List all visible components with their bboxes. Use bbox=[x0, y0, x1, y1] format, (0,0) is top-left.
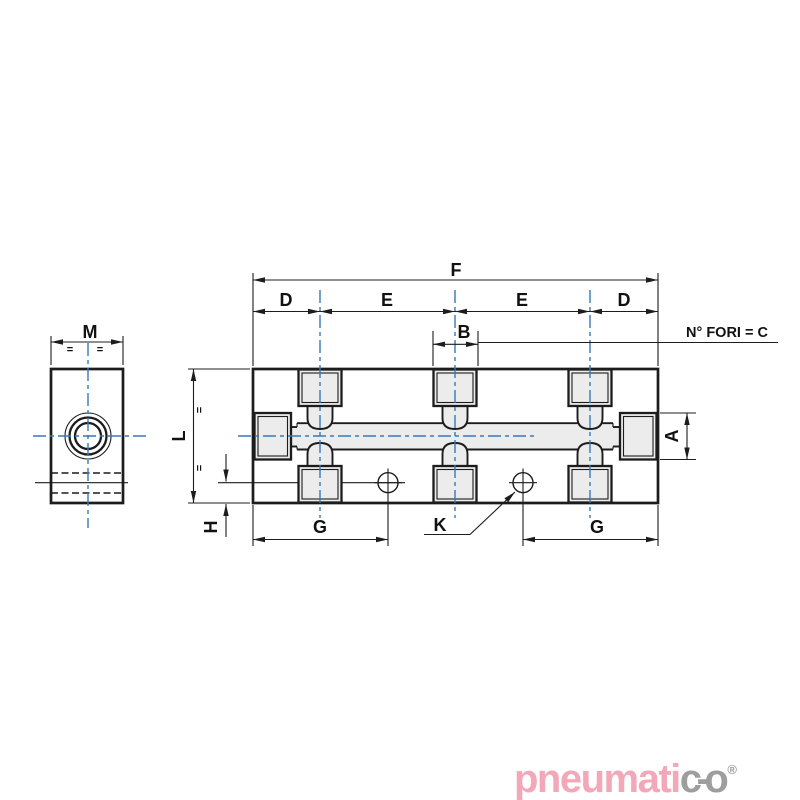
dim-label-f: F bbox=[451, 260, 462, 280]
equality-mark: = bbox=[97, 344, 103, 356]
logo-text-o: o bbox=[704, 757, 727, 800]
port-right bbox=[620, 413, 657, 460]
dim-label-g-right: G bbox=[590, 517, 604, 537]
dim-label-e-left: E bbox=[381, 290, 393, 310]
technical-drawing: M = = bbox=[0, 0, 800, 800]
dim-label-h: H bbox=[201, 521, 221, 534]
dim-label-k: K bbox=[434, 515, 447, 535]
dim-label-m: M bbox=[83, 322, 98, 342]
registered-mark: ® bbox=[727, 762, 737, 777]
end-view: M = = bbox=[33, 322, 150, 528]
dim-m: M = = bbox=[51, 322, 123, 365]
dim-label-l: L bbox=[169, 431, 189, 442]
dim-label-d-left: D bbox=[280, 290, 293, 310]
equality-mark: = bbox=[194, 407, 206, 413]
dim-label-b: B bbox=[458, 322, 471, 342]
logo-text-primary: pneumati bbox=[514, 757, 680, 800]
brand-logo: pneumatic-o® bbox=[514, 757, 737, 800]
equality-mark: = bbox=[194, 465, 206, 471]
dim-label-g-left: G bbox=[313, 517, 327, 537]
holes-note: N° FORI = C bbox=[686, 325, 768, 341]
equality-mark: = bbox=[67, 344, 73, 356]
section-view bbox=[218, 290, 658, 546]
dim-label-a: A bbox=[662, 430, 682, 443]
dim-label-e-right: E bbox=[516, 290, 528, 310]
page: M = = bbox=[0, 0, 800, 800]
dim-label-d-right: D bbox=[618, 290, 631, 310]
